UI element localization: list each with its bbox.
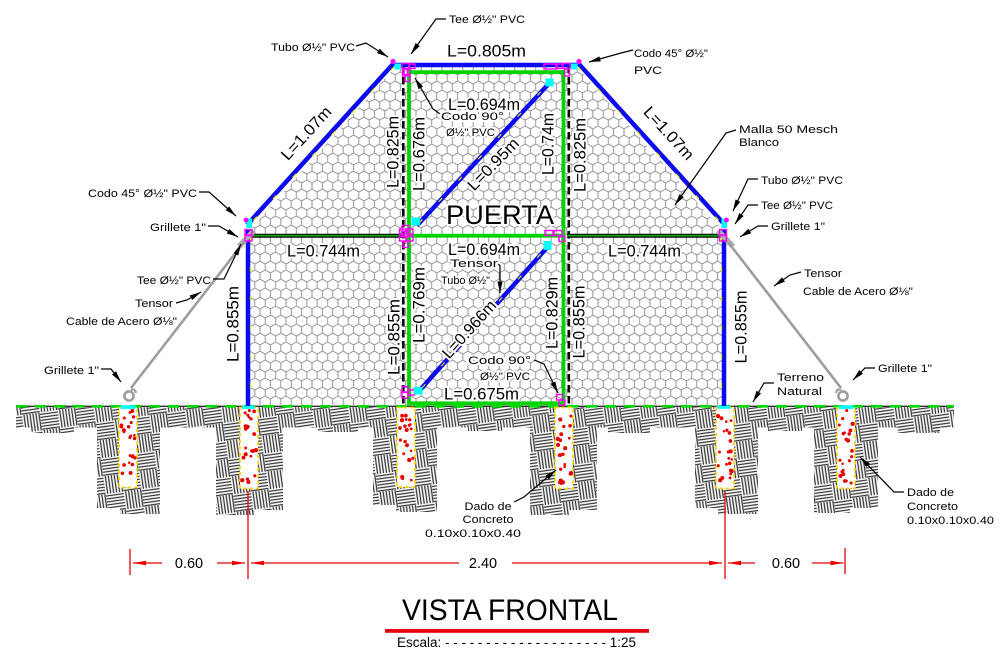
svg-text:PVC: PVC bbox=[634, 65, 662, 77]
svg-text:0.10x0.10x0.40: 0.10x0.10x0.40 bbox=[425, 528, 521, 540]
svg-text:Cable de Acero Ø⅛": Cable de Acero Ø⅛" bbox=[803, 286, 913, 298]
svg-text:0.10x0.10x0.40: 0.10x0.10x0.40 bbox=[907, 515, 994, 527]
svg-text:Ø½" PVC: Ø½" PVC bbox=[480, 371, 530, 383]
svg-text:Codo 45° Ø½" PVC: Codo 45° Ø½" PVC bbox=[88, 188, 197, 200]
svg-text:Grillete 1": Grillete 1" bbox=[150, 222, 206, 234]
svg-text:Grillete 1": Grillete 1" bbox=[878, 363, 932, 375]
svg-text:L=0.825m: L=0.825m bbox=[384, 116, 402, 188]
svg-text:L=0.676m: L=0.676m bbox=[410, 117, 428, 191]
svg-text:Tensor: Tensor bbox=[135, 298, 173, 310]
svg-text:VISTA FRONTAL: VISTA FRONTAL bbox=[402, 594, 618, 627]
svg-text:Malla 50 Mesch: Malla 50 Mesch bbox=[739, 124, 838, 136]
svg-text:L=0.675m: L=0.675m bbox=[444, 386, 519, 404]
svg-text:L=0.855m: L=0.855m bbox=[732, 291, 750, 364]
svg-text:2.40: 2.40 bbox=[469, 556, 497, 572]
svg-text:L=0.769m: L=0.769m bbox=[410, 267, 428, 343]
svg-text:Ø½" PVC: Ø½" PVC bbox=[446, 127, 495, 139]
svg-text:Codo 45° Ø½": Codo 45° Ø½" bbox=[634, 48, 708, 60]
svg-text:L=0.805m: L=0.805m bbox=[447, 43, 526, 61]
svg-text:Tubo Ø½": Tubo Ø½" bbox=[441, 275, 490, 287]
svg-text:Dado de: Dado de bbox=[465, 501, 512, 513]
svg-text:L=0.744m: L=0.744m bbox=[287, 243, 360, 261]
svg-text:Tee Ø½" PVC: Tee Ø½" PVC bbox=[449, 14, 525, 26]
svg-text:Codo 90°: Codo 90° bbox=[441, 111, 504, 123]
svg-text:Grillete 1": Grillete 1" bbox=[771, 221, 825, 233]
svg-text:Tensor: Tensor bbox=[450, 258, 498, 270]
svg-text:L=0.744m: L=0.744m bbox=[608, 243, 681, 261]
svg-text:Codo 90°: Codo 90° bbox=[468, 355, 531, 367]
svg-text:0.60: 0.60 bbox=[175, 556, 203, 572]
svg-text:Concreto: Concreto bbox=[463, 514, 514, 526]
svg-text:Grillete 1": Grillete 1" bbox=[44, 365, 99, 377]
svg-text:L=0.829m: L=0.829m bbox=[543, 277, 561, 349]
svg-text:L=0.825m: L=0.825m bbox=[571, 118, 589, 192]
svg-text:L=0.694m: L=0.694m bbox=[448, 241, 520, 259]
svg-text:Tensor: Tensor bbox=[804, 268, 842, 280]
svg-text:Concreto: Concreto bbox=[907, 501, 958, 513]
svg-text:Escala: - - - - - - - - - - -: Escala: - - - - - - - - - - - - - - - - … bbox=[397, 635, 636, 650]
svg-text:Tee Ø½" PVC: Tee Ø½" PVC bbox=[761, 200, 833, 212]
svg-text:Blanco: Blanco bbox=[739, 137, 779, 149]
svg-text:Tubo Ø½" PVC: Tubo Ø½" PVC bbox=[271, 42, 355, 54]
svg-text:Tee Ø½" PVC: Tee Ø½" PVC bbox=[137, 275, 211, 287]
svg-text:L=0.855m: L=0.855m bbox=[385, 299, 403, 375]
svg-text:Terreno: Terreno bbox=[777, 372, 824, 384]
svg-text:Natural: Natural bbox=[777, 386, 822, 398]
svg-text:L=0.74m: L=0.74m bbox=[539, 113, 557, 175]
svg-text:L=0.855m: L=0.855m bbox=[224, 286, 242, 362]
svg-text:Tubo Ø½" PVC: Tubo Ø½" PVC bbox=[761, 175, 843, 187]
svg-text:L=0.855m: L=0.855m bbox=[570, 286, 588, 359]
svg-text:Cable de Acero Ø⅛": Cable de Acero Ø⅛" bbox=[66, 316, 177, 328]
svg-text:PUERTA: PUERTA bbox=[446, 200, 554, 230]
svg-text:Dado de: Dado de bbox=[907, 487, 954, 499]
svg-text:0.60: 0.60 bbox=[772, 556, 800, 572]
